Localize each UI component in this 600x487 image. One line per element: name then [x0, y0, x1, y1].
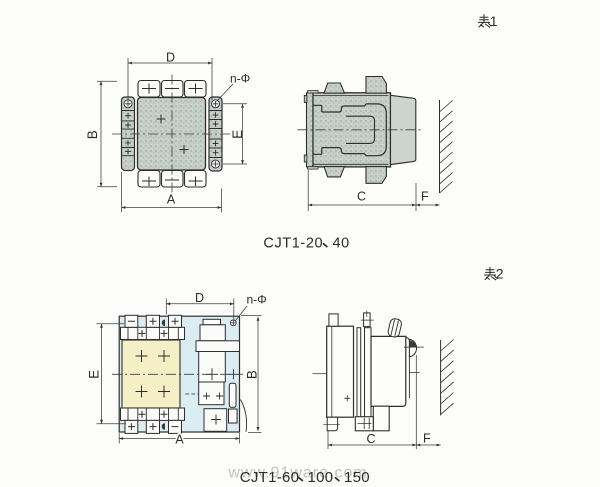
- svg-text:CJT1-60: CJT1-60: [240, 469, 300, 486]
- svg-text:D: D: [195, 291, 204, 305]
- svg-text:CJT1-20: CJT1-20: [263, 236, 323, 252]
- svg-text:C: C: [366, 432, 375, 446]
- svg-text:F: F: [423, 432, 431, 446]
- svg-text:100: 100: [308, 469, 334, 486]
- svg-text:C: C: [357, 190, 366, 204]
- svg-text:E: E: [87, 370, 102, 379]
- svg-text:A: A: [175, 433, 184, 447]
- svg-text:150: 150: [344, 469, 370, 486]
- svg-text:E: E: [230, 130, 245, 139]
- svg-text:D: D: [166, 51, 175, 65]
- svg-text:2: 2: [496, 265, 504, 281]
- svg-text:1: 1: [490, 13, 498, 29]
- svg-text:B: B: [245, 370, 260, 379]
- svg-text:F: F: [421, 190, 429, 204]
- svg-text:n-Φ: n-Φ: [230, 72, 250, 86]
- svg-text:40: 40: [333, 236, 350, 252]
- svg-text:A: A: [167, 193, 176, 207]
- svg-text:n-Φ: n-Φ: [247, 293, 267, 307]
- svg-text:B: B: [85, 130, 100, 139]
